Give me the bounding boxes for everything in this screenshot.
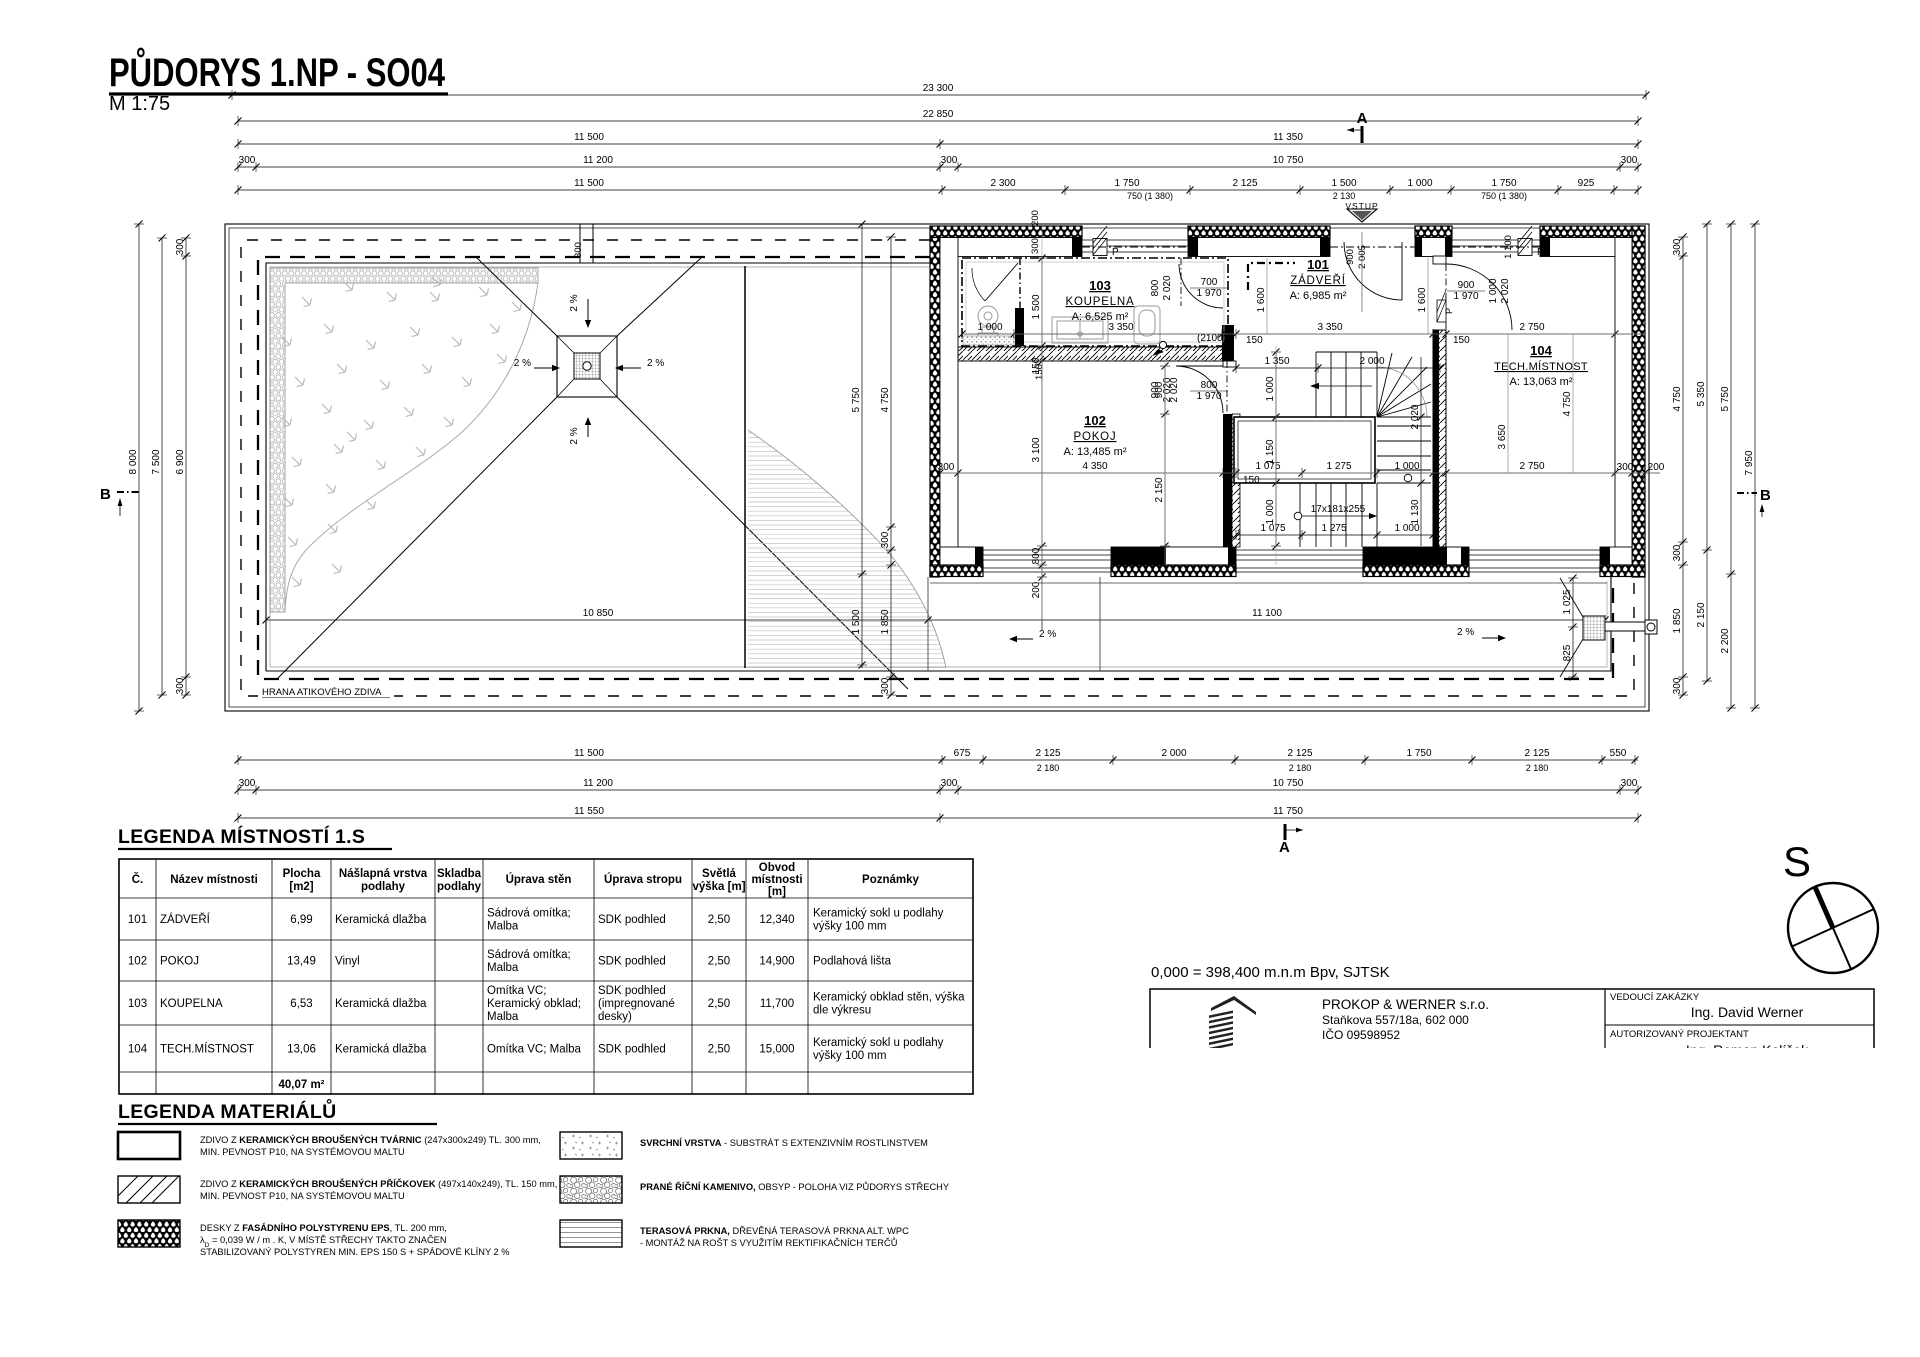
svg-text:6,99: 6,99 — [290, 914, 312, 926]
svg-text:Staňkova 557/18a, 602 000: Staňkova 557/18a, 602 000 — [1322, 1013, 1469, 1027]
svg-text:1 600: 1 600 — [1256, 287, 1267, 312]
svg-text:[m]: [m] — [768, 886, 786, 898]
svg-text:ZÁDVEŘÍ: ZÁDVEŘÍ — [1290, 274, 1345, 287]
svg-text:- MONTÁŽ NA ROŠT S VYUŽITÍM RE: - MONTÁŽ NA ROŠT S VYUŽITÍM REKTIFIKAČNÍ… — [640, 1237, 897, 1248]
svg-text:300: 300 — [880, 531, 891, 548]
svg-text:P: P — [1112, 247, 1119, 258]
svg-text:[m2]: [m2] — [289, 881, 313, 893]
svg-text:23 300: 23 300 — [923, 83, 954, 94]
svg-text:2,50: 2,50 — [708, 914, 730, 926]
svg-text:11 200: 11 200 — [583, 155, 613, 166]
svg-text:40,07 m²: 40,07 m² — [278, 1079, 324, 1091]
svg-text:2 125: 2 125 — [1524, 748, 1549, 759]
svg-text:4 750: 4 750 — [880, 387, 891, 412]
svg-text:3 650: 3 650 — [1497, 424, 1508, 449]
svg-text:900: 900 — [1345, 249, 1356, 265]
svg-text:2 130: 2 130 — [1333, 191, 1356, 201]
svg-text:11,700: 11,700 — [760, 998, 794, 1010]
svg-text:2 750: 2 750 — [1519, 461, 1544, 472]
svg-text:103: 103 — [128, 998, 147, 1010]
svg-text:Ing. David Werner: Ing. David Werner — [1691, 1004, 1804, 1020]
svg-text:300: 300 — [941, 155, 958, 166]
svg-text:TECH.MÍSTNOST: TECH.MÍSTNOST — [160, 1043, 254, 1056]
svg-text:1 750: 1 750 — [1406, 748, 1431, 759]
svg-text:Keramický obklad stěn, výška: Keramický obklad stěn, výška — [813, 992, 965, 1004]
svg-text:Keramická dlažba: Keramická dlažba — [335, 914, 427, 926]
svg-text:ZDIVO Z KERAMICKÝCH BROUŠENÝCH: ZDIVO Z KERAMICKÝCH BROUŠENÝCH PŘÍČKOVEK… — [200, 1178, 557, 1189]
svg-text:KOUPELNA: KOUPELNA — [1065, 296, 1134, 308]
svg-text:10 750: 10 750 — [1273, 155, 1304, 166]
svg-text:550: 550 — [1610, 748, 1627, 759]
svg-text:1 750: 1 750 — [1491, 178, 1516, 189]
svg-text:Omítka VC;: Omítka VC; — [487, 985, 546, 997]
svg-text:1 600: 1 600 — [1417, 287, 1428, 312]
svg-text:desky): desky) — [598, 1011, 632, 1023]
svg-text:POKOJ: POKOJ — [1074, 431, 1117, 443]
svg-text:(2100): (2100) — [1197, 333, 1226, 344]
svg-text:0,000 = 398,400 m.n.m Bpv, SJT: 0,000 = 398,400 m.n.m Bpv, SJTSK — [1151, 964, 1390, 981]
svg-text:SDK podhled: SDK podhled — [598, 956, 666, 968]
svg-text:Úprava stěn: Úprava stěn — [506, 873, 572, 886]
svg-text:5 350: 5 350 — [1696, 381, 1707, 406]
svg-text:200: 200 — [1031, 581, 1042, 598]
svg-text:200: 200 — [1030, 210, 1041, 226]
svg-text:Název místnosti: Název místnosti — [170, 874, 258, 886]
svg-text:5 750: 5 750 — [1720, 386, 1731, 411]
svg-text:1 275: 1 275 — [1326, 461, 1351, 472]
svg-text:750 (1 380): 750 (1 380) — [1127, 191, 1173, 201]
svg-text:1 000: 1 000 — [1265, 376, 1276, 401]
svg-text:2,50: 2,50 — [708, 998, 730, 1010]
svg-text:Obvod: Obvod — [759, 862, 795, 874]
svg-text:2 180: 2 180 — [1526, 763, 1549, 773]
svg-text:Plocha: Plocha — [283, 868, 321, 880]
svg-text:1 850: 1 850 — [880, 609, 891, 634]
svg-text:1 970: 1 970 — [1453, 291, 1478, 302]
svg-text:PROKOP & WERNER s.r.o.: PROKOP & WERNER s.r.o. — [1322, 997, 1489, 1012]
svg-text:14,900: 14,900 — [759, 956, 794, 968]
svg-text:Sádrová omítka;: Sádrová omítka; — [487, 908, 571, 920]
svg-text:Keramický sokl u podlahy: Keramický sokl u podlahy — [813, 1037, 944, 1049]
svg-text:22 850: 22 850 — [923, 109, 954, 120]
svg-text:900: 900 — [1150, 381, 1161, 398]
svg-text:LEGENDA MATERIÁLŮ: LEGENDA MATERIÁLŮ — [118, 1097, 337, 1123]
svg-text:2 %: 2 % — [647, 358, 664, 369]
svg-text:podlahy: podlahy — [437, 881, 482, 893]
svg-text:11 750: 11 750 — [1273, 806, 1303, 817]
svg-text:P: P — [1444, 308, 1454, 314]
svg-text:výška [m]: výška [m] — [692, 881, 745, 893]
svg-text:10 750: 10 750 — [1273, 778, 1304, 789]
svg-text:Keramický obklad;: Keramický obklad; — [487, 998, 581, 1010]
svg-text:150: 150 — [1034, 364, 1045, 380]
svg-text:1 000: 1 000 — [1488, 278, 1499, 303]
svg-text:17x181x255: 17x181x255 — [1311, 504, 1366, 515]
svg-text:A: 13,063 m²: A: 13,063 m² — [1510, 376, 1573, 388]
svg-text:Nášlapná vrstva: Nášlapná vrstva — [339, 868, 428, 880]
svg-text:Malba: Malba — [487, 921, 519, 933]
svg-text:2 %: 2 % — [569, 427, 580, 444]
svg-text:300: 300 — [1030, 238, 1041, 254]
svg-text:1 000: 1 000 — [1265, 499, 1276, 524]
svg-text:PRANÉ ŘÍČNÍ KAMENIVO, OBSYP -: PRANÉ ŘÍČNÍ KAMENIVO, OBSYP - POLOHA VIZ… — [640, 1181, 949, 1192]
svg-text:11 500: 11 500 — [574, 748, 604, 759]
svg-text:KOUPELNA: KOUPELNA — [160, 998, 223, 1010]
svg-text:ZDIVO Z KERAMICKÝCH BROUŠENÝCH: ZDIVO Z KERAMICKÝCH BROUŠENÝCH TVÁRNIC (… — [200, 1134, 541, 1145]
svg-text:2,50: 2,50 — [708, 956, 730, 968]
svg-text:300: 300 — [1621, 778, 1638, 789]
svg-text:SDK podhled: SDK podhled — [598, 914, 666, 926]
svg-text:2 %: 2 % — [1039, 629, 1056, 640]
svg-text:A: A — [1357, 110, 1368, 127]
svg-text:15,000: 15,000 — [759, 1044, 794, 1056]
svg-text:2 125: 2 125 — [1287, 748, 1312, 759]
svg-text:B: B — [1760, 487, 1771, 504]
svg-text:VEDOUCÍ ZAKÁZKY: VEDOUCÍ ZAKÁZKY — [1610, 992, 1700, 1003]
svg-text:2 005: 2 005 — [1357, 245, 1368, 269]
svg-text:1 750: 1 750 — [1114, 178, 1139, 189]
svg-text:1 100: 1 100 — [1503, 235, 1514, 259]
svg-text:1 500: 1 500 — [1331, 178, 1356, 189]
svg-text:101: 101 — [128, 914, 147, 926]
svg-text:300: 300 — [175, 677, 186, 694]
svg-text:11 500: 11 500 — [574, 178, 604, 189]
svg-text:2 000: 2 000 — [1161, 748, 1186, 759]
svg-text:AUTORIZOVANÝ PROJEKTANT: AUTORIZOVANÝ PROJEKTANT — [1610, 1029, 1749, 1040]
svg-text:Poznámky: Poznámky — [862, 874, 919, 886]
svg-text:300: 300 — [938, 462, 955, 473]
svg-text:300: 300 — [941, 778, 958, 789]
svg-text:Keramická dlažba: Keramická dlažba — [335, 1044, 427, 1056]
svg-text:800: 800 — [1150, 279, 1161, 296]
svg-text:LEGENDA MÍSTNOSTÍ 1.S: LEGENDA MÍSTNOSTÍ 1.S — [118, 825, 365, 848]
svg-text:150: 150 — [1246, 335, 1263, 346]
svg-text:11 550: 11 550 — [574, 806, 604, 817]
svg-text:2 180: 2 180 — [1289, 763, 1312, 773]
svg-text:A: 6,985 m²: A: 6,985 m² — [1290, 290, 1347, 302]
svg-text:podlahy: podlahy — [361, 881, 406, 893]
svg-text:101: 101 — [1307, 257, 1329, 272]
svg-text:3 350: 3 350 — [1108, 322, 1133, 333]
svg-text:SVRCHNÍ VRSTVA - SUBSTRÁT S EX: SVRCHNÍ VRSTVA - SUBSTRÁT S EXTENZIVNÍM … — [640, 1138, 928, 1148]
svg-text:MIN. PEVNOST P10, NA SYSTÉMOVO: MIN. PEVNOST P10, NA SYSTÉMOVOU MALTU — [200, 1147, 405, 1157]
svg-text:DESKY Z FASÁDNÍHO POLYSTYRENU: DESKY Z FASÁDNÍHO POLYSTYRENU EPS, TL. 2… — [200, 1223, 447, 1233]
svg-text:700: 700 — [1201, 277, 1218, 288]
svg-text:2 150: 2 150 — [1696, 602, 1707, 627]
svg-text:11 200: 11 200 — [583, 778, 613, 789]
svg-text:6 900: 6 900 — [175, 449, 186, 474]
svg-text:300: 300 — [880, 677, 891, 694]
svg-text:300: 300 — [239, 778, 256, 789]
svg-text:200: 200 — [1648, 462, 1665, 473]
svg-text:300: 300 — [1672, 544, 1683, 561]
svg-text:7 950: 7 950 — [1744, 450, 1755, 475]
svg-text:104: 104 — [1530, 343, 1552, 358]
svg-text:2 020: 2 020 — [1162, 275, 1173, 300]
svg-text:900: 900 — [1458, 280, 1475, 291]
svg-text:825: 825 — [1562, 644, 1573, 661]
svg-text:11 100: 11 100 — [1252, 608, 1282, 619]
svg-text:2 020: 2 020 — [1500, 278, 1511, 303]
svg-text:A: A — [1279, 839, 1290, 856]
svg-text:2 200: 2 200 — [1720, 628, 1731, 653]
svg-text:150: 150 — [1453, 335, 1470, 346]
svg-text:SDK podhled: SDK podhled — [598, 1044, 666, 1056]
svg-text:750 (1 380): 750 (1 380) — [1481, 191, 1527, 201]
svg-text:300: 300 — [175, 238, 186, 255]
svg-text:2 %: 2 % — [1457, 627, 1474, 638]
svg-text:Podlahová lišta: Podlahová lišta — [813, 956, 892, 968]
svg-text:SDK podhled: SDK podhled — [598, 985, 666, 997]
svg-text:5 750: 5 750 — [851, 387, 862, 412]
svg-text:1 500: 1 500 — [1031, 294, 1042, 319]
svg-text:1 000: 1 000 — [977, 322, 1002, 333]
svg-text:102: 102 — [128, 956, 147, 968]
svg-text:ZÁDVEŘÍ: ZÁDVEŘÍ — [160, 913, 211, 926]
svg-text:8 000: 8 000 — [128, 449, 139, 474]
svg-text:Keramický sokl u podlahy: Keramický sokl u podlahy — [813, 908, 944, 920]
svg-text:2 180: 2 180 — [1037, 763, 1060, 773]
svg-text:1 275: 1 275 — [1321, 523, 1346, 534]
svg-text:300: 300 — [1617, 462, 1634, 473]
svg-text:1 970: 1 970 — [1196, 391, 1221, 402]
svg-text:800: 800 — [1031, 547, 1042, 564]
svg-text:103: 103 — [1089, 278, 1111, 293]
svg-text:Omítka VC; Malba: Omítka VC; Malba — [487, 1044, 582, 1056]
svg-text:2 020: 2 020 — [1410, 404, 1421, 429]
svg-text:104: 104 — [128, 1044, 148, 1056]
svg-text:2 125: 2 125 — [1035, 748, 1060, 759]
svg-text:STABILIZOVANÝ POLYSTYREN MIN.: STABILIZOVANÝ POLYSTYREN MIN. EPS 150 S … — [200, 1247, 510, 1257]
svg-text:300: 300 — [1672, 677, 1683, 694]
svg-text:1 025: 1 025 — [1562, 589, 1573, 614]
svg-text:2 300: 2 300 — [990, 178, 1015, 189]
svg-text:1 000: 1 000 — [1407, 178, 1432, 189]
svg-text:Malba: Malba — [487, 962, 519, 974]
svg-text:10 850: 10 850 — [583, 608, 614, 619]
svg-text:2 150: 2 150 — [1154, 477, 1165, 502]
svg-text:11 500: 11 500 — [574, 132, 604, 143]
svg-text:3 350: 3 350 — [1317, 322, 1342, 333]
svg-text:13,06: 13,06 — [287, 1044, 316, 1056]
svg-text:POKOJ: POKOJ — [160, 956, 199, 968]
svg-text:2,50: 2,50 — [708, 1044, 730, 1056]
svg-text:B: B — [100, 486, 111, 503]
svg-text:1 130: 1 130 — [1410, 499, 1421, 524]
svg-text:1 150: 1 150 — [1265, 439, 1276, 464]
svg-text:3 100: 3 100 — [1031, 437, 1042, 462]
svg-text:PŮDORYS 1.NP - SO04: PŮDORYS 1.NP - SO04 — [109, 46, 446, 95]
svg-text:Sádrová omítka;: Sádrová omítka; — [487, 949, 571, 961]
svg-text:4 350: 4 350 — [1082, 461, 1107, 472]
svg-text:A: 13,485 m²: A: 13,485 m² — [1064, 446, 1127, 458]
svg-text:11 350: 11 350 — [1273, 132, 1303, 143]
svg-text:dle výkresu: dle výkresu — [813, 1005, 871, 1017]
svg-text:místnosti: místnosti — [751, 874, 802, 886]
svg-text:925: 925 — [1578, 178, 1595, 189]
svg-text:M 1:75: M 1:75 — [109, 93, 170, 115]
svg-text:(impregnované: (impregnované — [598, 998, 675, 1010]
svg-text:HRANA ATIKOVÉHO ZDIVA: HRANA ATIKOVÉHO ZDIVA — [262, 687, 382, 698]
svg-text:2 000: 2 000 — [1359, 356, 1384, 367]
svg-text:2 020: 2 020 — [1162, 377, 1173, 402]
svg-text:Č.: Č. — [132, 873, 144, 886]
svg-text:2 %: 2 % — [569, 294, 580, 311]
svg-text:Vinyl: Vinyl — [335, 956, 360, 968]
svg-text:2 %: 2 % — [514, 358, 531, 369]
svg-text:MIN. PEVNOST P10, NA SYSTÉMOVO: MIN. PEVNOST P10, NA SYSTÉMOVOU MALTU — [200, 1191, 405, 1201]
svg-text:P: P — [1537, 247, 1544, 258]
svg-text:1 000: 1 000 — [1394, 461, 1419, 472]
svg-text:300: 300 — [1621, 155, 1638, 166]
svg-text:4 750: 4 750 — [1672, 386, 1683, 411]
svg-text:1 850: 1 850 — [1672, 608, 1683, 633]
svg-text:300: 300 — [239, 155, 256, 166]
svg-text:6,53: 6,53 — [290, 998, 312, 1010]
svg-text:300: 300 — [573, 242, 584, 258]
svg-text:výšky 100 mm: výšky 100 mm — [813, 1050, 887, 1062]
svg-text:Úprava stropu: Úprava stropu — [604, 873, 682, 886]
svg-text:IČO 09598952: IČO 09598952 — [1322, 1027, 1400, 1042]
svg-text:1 970: 1 970 — [1196, 288, 1221, 299]
svg-text:TERASOVÁ PRKNA, DŘEVĚNÁ TERASO: TERASOVÁ PRKNA, DŘEVĚNÁ TERASOVÁ PRKNA A… — [640, 1226, 909, 1236]
svg-text:výšky 100 mm: výšky 100 mm — [813, 921, 887, 933]
svg-text:150: 150 — [1243, 475, 1260, 486]
svg-text:300: 300 — [1672, 238, 1683, 255]
svg-text:Malba: Malba — [487, 1011, 519, 1023]
svg-text:Skladba: Skladba — [437, 868, 482, 880]
svg-text:Keramická dlažba: Keramická dlažba — [335, 998, 427, 1010]
svg-text:800: 800 — [1201, 380, 1218, 391]
svg-text:1 350: 1 350 — [1264, 356, 1289, 367]
svg-text:102: 102 — [1084, 413, 1106, 428]
svg-text:2 750: 2 750 — [1519, 322, 1544, 333]
svg-text:4 750: 4 750 — [1562, 391, 1573, 416]
svg-text:675: 675 — [954, 748, 971, 759]
svg-text:7 500: 7 500 — [151, 449, 162, 474]
svg-text:1 500: 1 500 — [851, 609, 862, 634]
svg-text:12,340: 12,340 — [759, 914, 794, 926]
svg-text:S: S — [1783, 838, 1811, 885]
svg-text:Světlá: Světlá — [702, 868, 736, 880]
svg-text:2 125: 2 125 — [1232, 178, 1257, 189]
svg-text:13,49: 13,49 — [287, 956, 316, 968]
